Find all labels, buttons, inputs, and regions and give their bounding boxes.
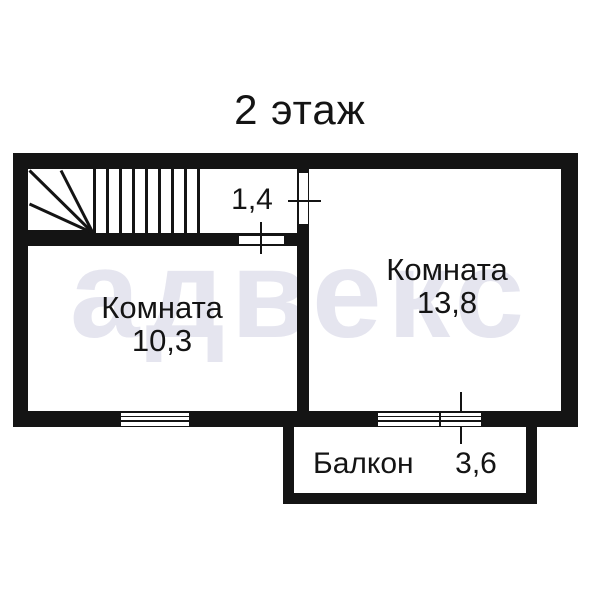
room-right-area: 13,8 (347, 286, 547, 319)
balcony-area-label: 3,6 (446, 447, 506, 480)
stairs-winder-icon (28, 169, 93, 233)
balcony-wall-bottom (283, 493, 537, 504)
outer-wall-top (13, 153, 578, 169)
room-left-area: 10,3 (62, 324, 262, 357)
window-pane-line (121, 416, 189, 418)
page-title: 2 этаж (0, 86, 600, 134)
floorplan-canvas: 2 этаж адвекс 1,4 Комната (0, 0, 600, 600)
room-right-label: Комната 13,8 (347, 253, 547, 319)
hall-area-label: 1,4 (207, 184, 297, 216)
room-left-label: Комната 10,3 (62, 291, 262, 357)
stairs-treads-icon (93, 169, 209, 233)
window-room-left-icon (120, 412, 190, 427)
door-opening-hall-right (298, 172, 309, 225)
room-left-name: Комната (62, 291, 262, 324)
balcony-wall-right (526, 425, 537, 504)
window-pane-line (121, 420, 189, 422)
balcony-name-label: Балкон (313, 447, 413, 480)
window-pane-line (378, 420, 481, 422)
outer-wall-left (13, 153, 28, 427)
outer-wall-bottom (13, 411, 578, 427)
window-pane-line (378, 416, 481, 418)
window-divider (439, 413, 441, 426)
room-right-name: Комната (347, 253, 547, 286)
measure-tick-door-bottom (260, 222, 262, 254)
window-balcony-door-icon (377, 412, 482, 427)
outer-wall-right (561, 153, 578, 427)
